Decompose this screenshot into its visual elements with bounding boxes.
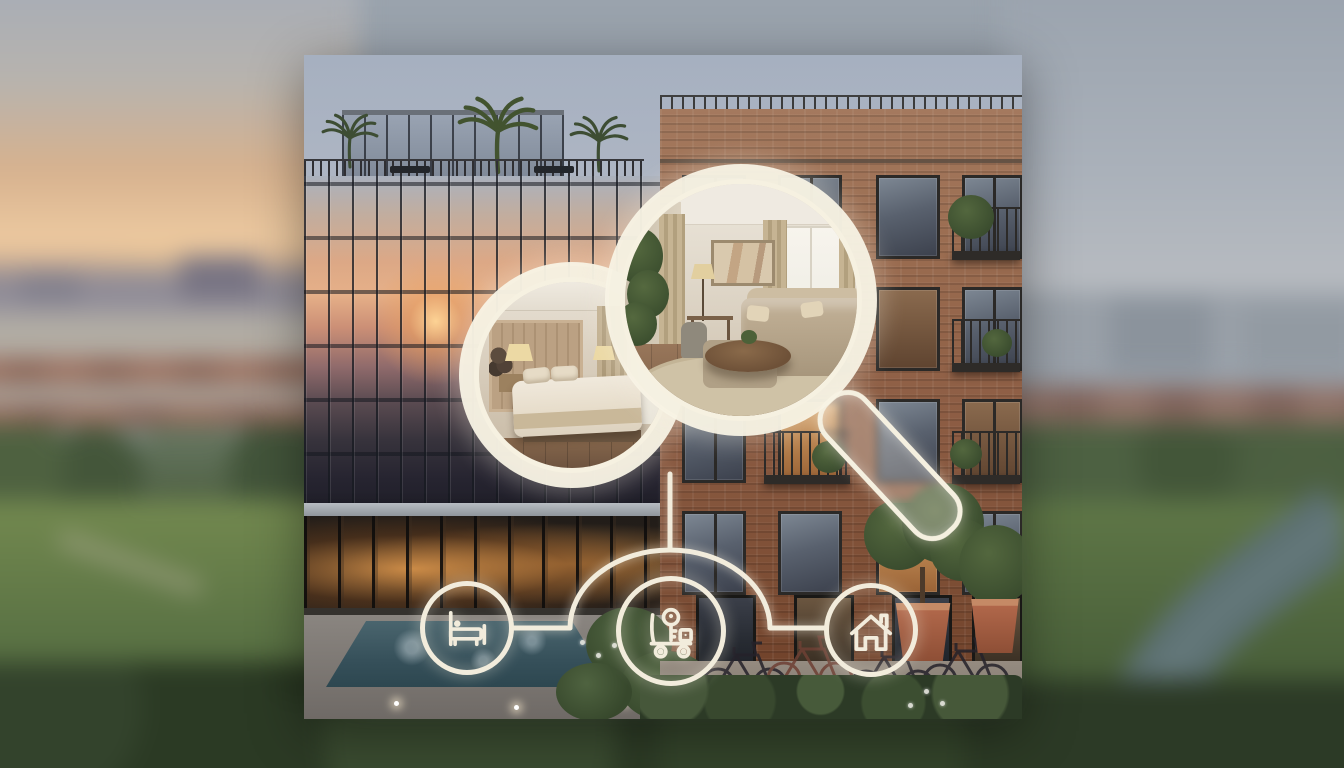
framed-art <box>711 240 775 286</box>
bed-glyph <box>441 602 493 654</box>
bed <box>512 375 643 438</box>
tree-band-left <box>0 424 355 510</box>
skyline-block <box>20 272 80 302</box>
balcony-plant <box>982 329 1012 357</box>
pillow <box>551 365 579 381</box>
white-flower <box>580 640 585 645</box>
window <box>778 511 842 595</box>
window <box>876 175 940 259</box>
balcony <box>952 251 1020 260</box>
bedroom-floor <box>479 438 665 468</box>
red-roof-row <box>0 358 350 384</box>
building-block <box>1245 308 1344 372</box>
white-flower <box>612 643 617 648</box>
white-flower <box>924 689 929 694</box>
balcony-tree <box>948 195 994 239</box>
lounge-chair <box>534 166 574 173</box>
key-cart-icon <box>616 576 726 686</box>
white-flower <box>596 653 601 658</box>
bedside-lamp <box>593 346 615 360</box>
magnifier-large-lens <box>620 179 862 421</box>
bush <box>556 663 632 719</box>
balcony <box>952 475 1020 484</box>
lounge-chair <box>390 166 430 173</box>
white-flower <box>908 703 913 708</box>
sofa-cushion <box>800 301 824 319</box>
bedside-lamp <box>505 344 533 361</box>
deck-light <box>514 705 519 710</box>
deck-light <box>394 701 399 706</box>
red-roof-row <box>0 404 350 426</box>
sofa-cushion <box>746 305 769 322</box>
building-block <box>1110 298 1210 372</box>
coffee-table <box>705 340 791 372</box>
entrance-canopy <box>304 503 672 516</box>
balcony <box>764 475 850 484</box>
floor-lamp <box>691 264 715 279</box>
bed-icon <box>420 581 514 675</box>
house-glyph <box>844 603 898 657</box>
balcony <box>952 363 1020 372</box>
pillow <box>522 367 550 385</box>
key-cart-glyph <box>640 600 702 662</box>
hedge <box>640 675 1022 719</box>
white-flower <box>940 701 945 706</box>
scene-root <box>0 0 1344 768</box>
floor-lamp-pole <box>702 279 704 321</box>
balcony-plant <box>950 439 982 469</box>
skyline-block <box>180 256 258 300</box>
table-plant <box>741 330 757 344</box>
house-icon <box>824 583 918 677</box>
window <box>876 287 940 371</box>
dark-trees-right <box>1000 680 1344 768</box>
bed-throw <box>513 408 642 430</box>
cornice-line <box>660 159 1022 163</box>
